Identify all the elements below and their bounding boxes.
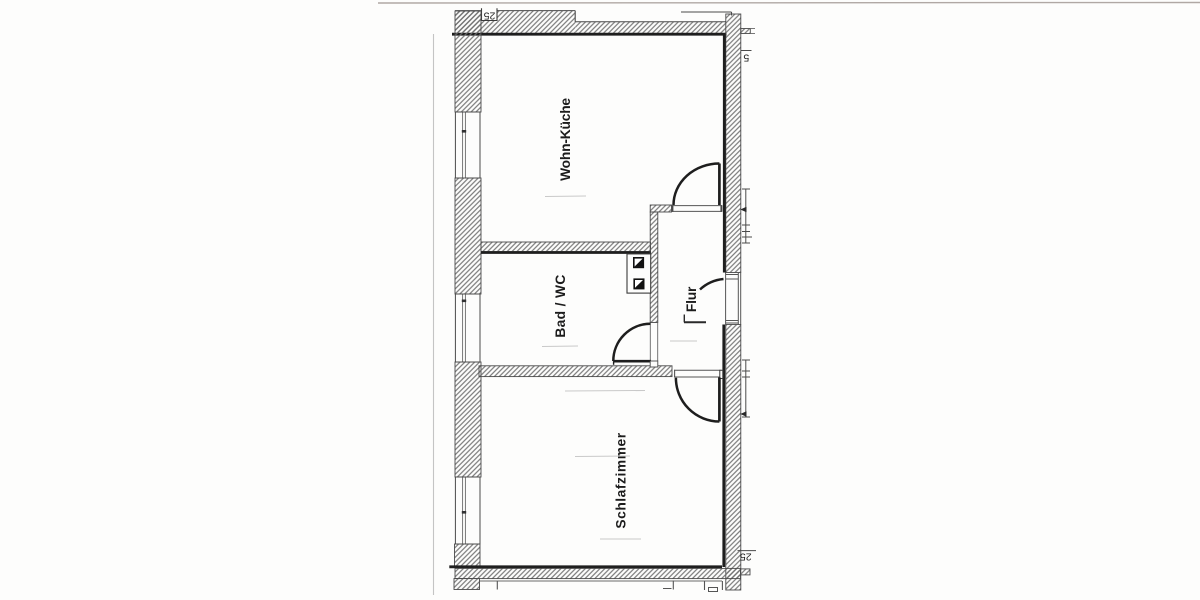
svg-text:Wohn-Küche: Wohn-Küche <box>558 98 573 181</box>
svg-text:25: 25 <box>740 551 752 563</box>
svg-text:5: 5 <box>743 52 749 64</box>
svg-text:Schlafzimmer: Schlafzimmer <box>614 432 629 528</box>
svg-text:25: 25 <box>484 10 496 22</box>
svg-text:Flur: Flur <box>684 286 699 312</box>
svg-text:Bad / WC: Bad / WC <box>553 274 568 337</box>
